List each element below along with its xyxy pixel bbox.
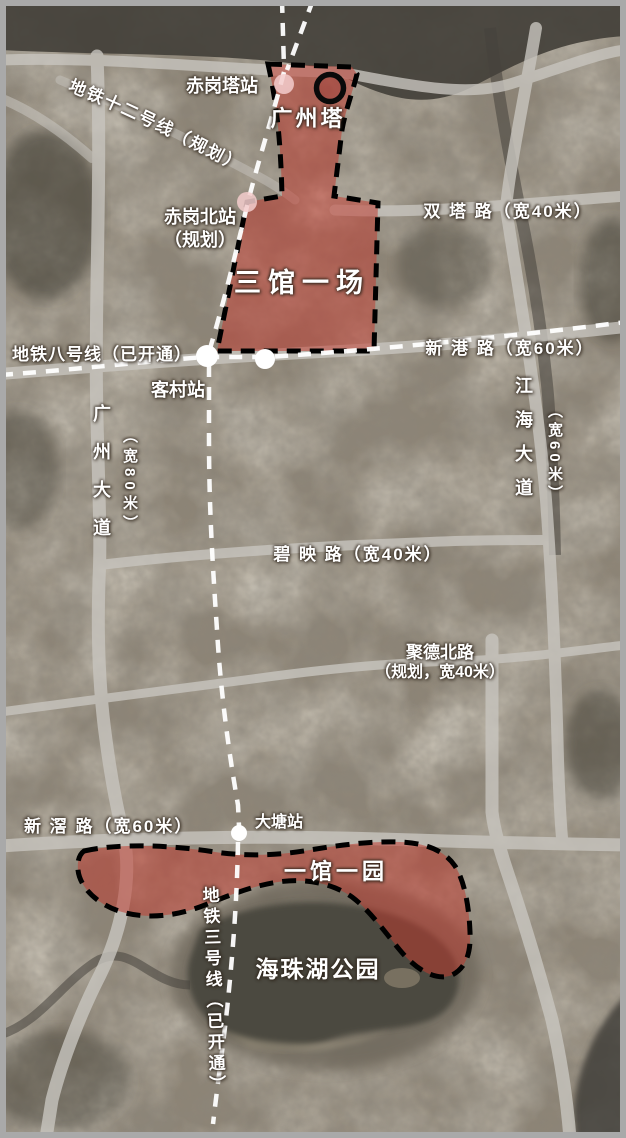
jude-north-road-name: 聚德北路: [375, 643, 505, 663]
xinjiao-road-label: 新 滘 路（宽60米）: [24, 812, 193, 837]
metro-line3-north-stub: [282, 0, 284, 68]
jude-north-road-label: 聚德北路 （规划，宽40米）: [375, 643, 505, 683]
lake-island: [384, 968, 420, 988]
kecun-station-label: 客村站: [151, 376, 205, 402]
chigangbei-station-dot: [237, 192, 257, 212]
yiguan-yiyuan-region-label: 一馆一园: [284, 854, 388, 886]
biying-road-label: 碧 映 路（宽40米）: [273, 540, 442, 565]
shuangta-road-label: 双 塔 路（宽40米）: [423, 197, 592, 222]
canton-tower-marker: [317, 75, 344, 102]
chigangbei-station-status: （规划）: [164, 229, 236, 252]
forest-patch: [397, 223, 493, 307]
jianghai-avenue-label: 江海大道: [510, 376, 536, 512]
metro-line8-label: 地铁八号线（已开通）: [12, 340, 192, 365]
haizhu-park-label: 海珠湖公园: [256, 950, 381, 984]
jude-north-road-width: （规划，宽40米）: [375, 663, 505, 683]
kecun-station-dot-west: [196, 345, 218, 367]
chigangbei-station-label: 赤岗北站 （规划）: [164, 206, 236, 252]
chigangbei-station-name: 赤岗北站: [164, 206, 236, 229]
canton-tower-label: 广州塔: [270, 101, 345, 133]
guangzhou-avenue-label: 广州大道: [88, 404, 114, 556]
planning-map: 地铁十二号线（规划） 赤岗塔站 广州塔 赤岗北站 （规划） 双 塔 路（宽40米…: [0, 0, 626, 1138]
jianghai-avenue-width-label: （宽60米）: [544, 403, 565, 504]
datang-station-label: 大塘站: [255, 808, 303, 832]
chigangta-station-dot: [274, 74, 294, 94]
datang-station-dot: [231, 825, 247, 841]
sanguan-yichang-region-label: 三馆一场: [234, 261, 370, 300]
kecun-station-dot-east: [255, 349, 275, 369]
guangzhou-avenue-width-label: （宽80米）: [119, 428, 140, 535]
chigangta-station-label: 赤岗塔站: [186, 72, 258, 98]
xingang-road-label: 新 港 路（宽60米）: [425, 334, 594, 359]
